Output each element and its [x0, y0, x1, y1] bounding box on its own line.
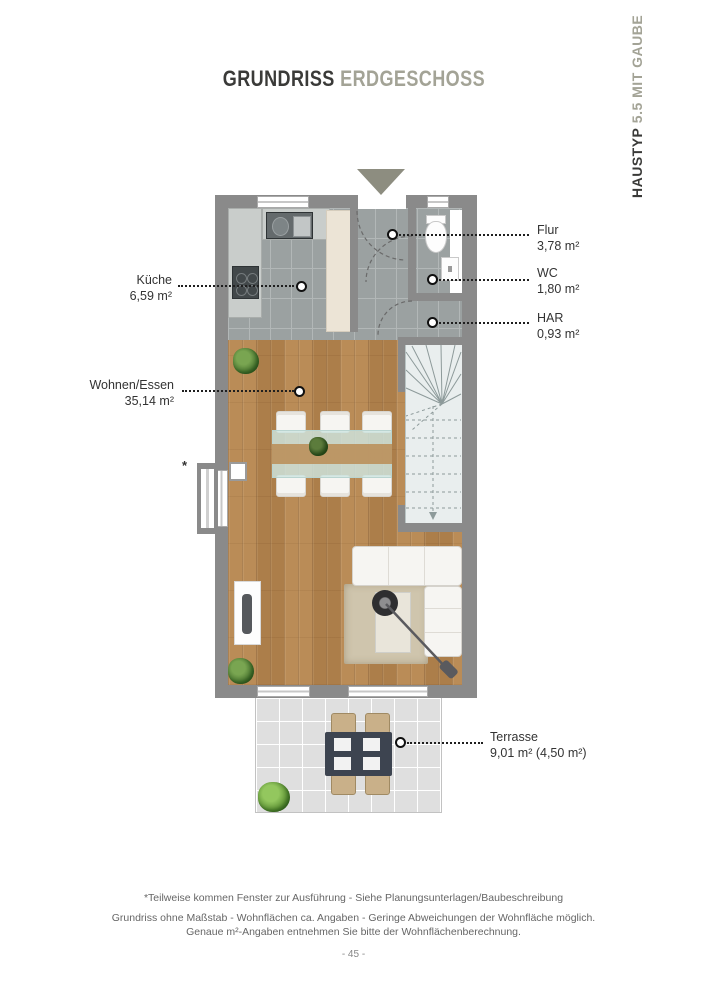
- room-label-flur: Flur 3,78 m²: [537, 222, 579, 254]
- room-marker-wohnen-essen: [294, 386, 305, 397]
- room-marker-wc: [427, 274, 438, 285]
- room-name: HAR: [537, 310, 579, 326]
- room-label-har: HAR 0,93 m²: [537, 310, 579, 342]
- room-label-kueche: Küche 6,59 m²: [60, 272, 172, 304]
- leader-line-flur: [399, 234, 529, 236]
- leader-line-har: [439, 322, 529, 324]
- room-area: 9,01 m² (4,50 m²): [490, 745, 587, 761]
- har-door-arc: [378, 301, 412, 335]
- room-area: 0,93 m²: [537, 326, 579, 342]
- room-marker-har: [427, 317, 438, 328]
- room-area: 3,78 m²: [537, 238, 579, 254]
- leader-line-wohnen-essen: [182, 390, 294, 392]
- entrance-arrow-icon: [357, 169, 405, 195]
- room-area: 1,80 m²: [537, 281, 579, 297]
- page-number: - 45 -: [0, 949, 707, 960]
- room-name: Wohnen/Essen: [40, 377, 174, 393]
- leader-line-kueche: [178, 285, 294, 287]
- room-label-terrasse: Terrasse 9,01 m² (4,50 m²): [490, 729, 587, 761]
- leader-line-terrasse: [407, 742, 483, 744]
- room-name: Terrasse: [490, 729, 587, 745]
- room-area: 6,59 m²: [60, 288, 172, 304]
- room-marker-flur: [387, 229, 398, 240]
- wc-door-arc: [366, 236, 412, 282]
- footnote-windows: *Teilweise kommen Fenster zur Ausführung…: [0, 892, 707, 904]
- room-area: 35,14 m²: [40, 393, 174, 409]
- door-swing-arcs: [357, 211, 412, 335]
- leader-line-wc: [439, 279, 529, 281]
- room-name: Küche: [60, 272, 172, 288]
- plan-lineart: [0, 0, 707, 1000]
- room-marker-kueche: [296, 281, 307, 292]
- disclaimer-line-2: Genaue m²-Angaben entnehmen Sie bitte de…: [0, 926, 707, 938]
- room-label-wohnen-essen: Wohnen/Essen 35,14 m²: [40, 377, 174, 409]
- room-label-wc: WC 1,80 m²: [537, 265, 579, 297]
- disclaimer-line-1: Grundriss ohne Maßstab - Wohnflächen ca.…: [0, 912, 707, 924]
- room-name: Flur: [537, 222, 579, 238]
- floor-lamp-arm: [386, 604, 459, 680]
- stair-treads: [406, 345, 461, 520]
- room-name: WC: [537, 265, 579, 281]
- room-marker-terrasse: [395, 737, 406, 748]
